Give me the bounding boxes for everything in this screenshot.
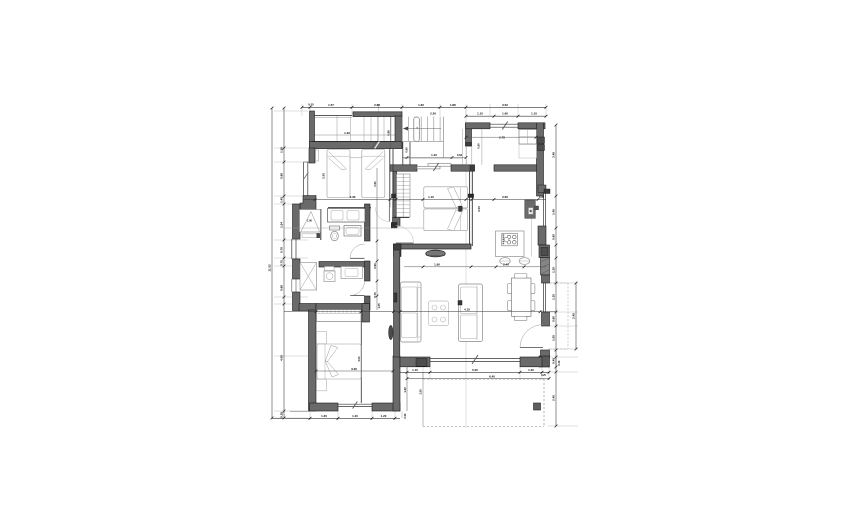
- svg-text:0.40: 0.40: [552, 358, 556, 364]
- svg-text:1.40: 1.40: [344, 131, 350, 135]
- svg-text:2.45: 2.45: [572, 313, 576, 319]
- svg-text:0.80: 0.80: [552, 234, 556, 240]
- svg-text:1.50: 1.50: [280, 147, 284, 153]
- svg-text:4.00: 4.00: [280, 355, 284, 361]
- svg-text:1.05: 1.05: [377, 303, 381, 309]
- svg-text:1.40: 1.40: [352, 414, 358, 418]
- svg-text:1.50: 1.50: [418, 389, 422, 395]
- svg-text:1.62: 1.62: [418, 103, 424, 107]
- svg-text:2.26: 2.26: [430, 112, 436, 116]
- svg-text:2.60: 2.60: [502, 195, 508, 199]
- svg-text:0.60: 0.60: [373, 181, 377, 187]
- svg-text:1.90: 1.90: [434, 262, 440, 266]
- svg-text:1.57: 1.57: [328, 103, 334, 107]
- svg-text:1.10: 1.10: [477, 112, 483, 116]
- svg-text:2.45: 2.45: [552, 395, 556, 401]
- svg-text:0.90: 0.90: [373, 263, 377, 269]
- svg-text:1.40: 1.40: [431, 153, 437, 157]
- svg-text:0.25: 0.25: [541, 374, 546, 377]
- svg-text:2.78: 2.78: [499, 136, 505, 140]
- svg-text:1.10: 1.10: [531, 112, 537, 116]
- svg-text:1.40: 1.40: [403, 387, 407, 393]
- svg-text:1.60: 1.60: [502, 112, 508, 116]
- svg-text:3.52: 3.52: [502, 103, 508, 107]
- svg-text:1.00: 1.00: [307, 220, 312, 223]
- svg-text:2.50: 2.50: [322, 173, 326, 179]
- svg-text:0.90: 0.90: [404, 413, 407, 418]
- svg-text:1.30: 1.30: [552, 294, 556, 300]
- svg-text:1.88: 1.88: [450, 103, 456, 107]
- svg-text:0.88: 0.88: [387, 130, 391, 136]
- svg-text:1.20: 1.20: [321, 414, 327, 418]
- svg-text:0.40: 0.40: [558, 360, 561, 365]
- svg-text:0.60: 0.60: [552, 316, 556, 322]
- svg-text:5.00: 5.00: [472, 368, 478, 372]
- svg-text:0.75: 0.75: [280, 260, 284, 266]
- svg-text:1.05: 1.05: [552, 335, 556, 341]
- svg-text:0.62: 0.62: [457, 153, 463, 157]
- svg-text:0.88: 0.88: [280, 173, 284, 179]
- svg-text:0.90: 0.90: [476, 143, 480, 149]
- svg-text:3.00: 3.00: [477, 206, 481, 212]
- svg-text:1.54: 1.54: [280, 222, 284, 228]
- svg-text:0.90: 0.90: [405, 147, 409, 153]
- svg-text:3.00: 3.00: [357, 356, 361, 362]
- svg-text:1.40: 1.40: [280, 197, 284, 203]
- svg-text:0.15: 0.15: [308, 103, 314, 107]
- svg-text:6.40: 6.40: [489, 374, 495, 378]
- svg-text:0.70: 0.70: [373, 292, 377, 298]
- svg-text:4.15: 4.15: [464, 307, 470, 311]
- svg-text:3.30: 3.30: [350, 195, 356, 199]
- svg-text:0.78: 0.78: [280, 247, 284, 253]
- svg-text:1.20: 1.20: [552, 267, 556, 273]
- svg-text:1.20: 1.20: [381, 414, 387, 418]
- svg-text:11.52: 11.52: [268, 264, 272, 272]
- svg-text:3.20: 3.20: [351, 367, 357, 371]
- svg-text:2.88: 2.88: [374, 103, 380, 107]
- svg-text:0.35: 0.35: [539, 195, 545, 199]
- svg-text:2.40: 2.40: [503, 262, 509, 266]
- svg-text:0.28: 0.28: [280, 412, 284, 418]
- svg-text:1.10: 1.10: [412, 368, 418, 372]
- svg-text:1.10: 1.10: [428, 195, 434, 199]
- svg-text:1.45: 1.45: [552, 209, 556, 215]
- svg-text:3.48: 3.48: [552, 152, 556, 158]
- svg-text:0.88: 0.88: [280, 285, 284, 291]
- svg-text:1.20: 1.20: [528, 368, 534, 372]
